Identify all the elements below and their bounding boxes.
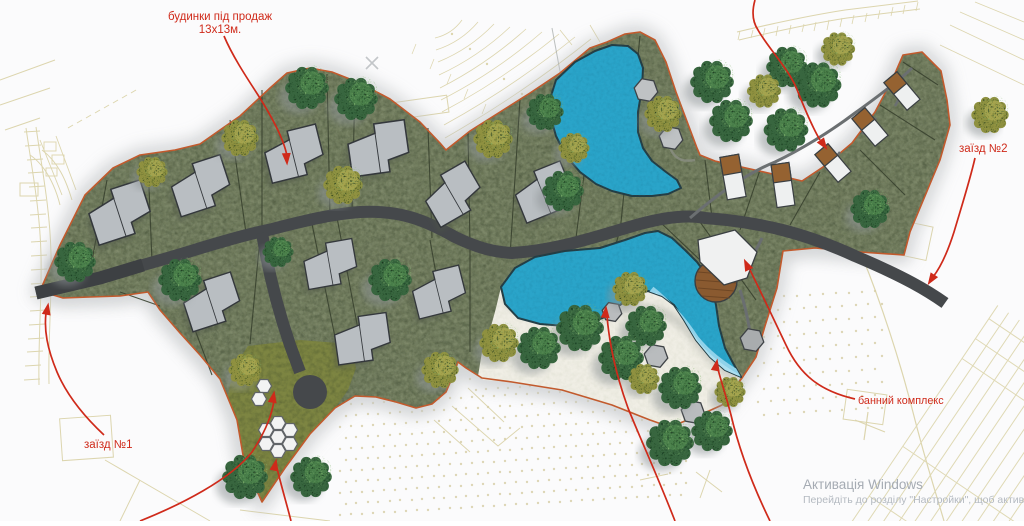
svg-text:заїзд №2: заїзд №2 <box>959 143 1008 155</box>
svg-text:заїзд №1: заїзд №1 <box>84 439 133 451</box>
svg-text:Перейдіть до розділу "Настройк: Перейдіть до розділу "Настройки", щоб ак… <box>803 494 1024 506</box>
svg-text:будинки під продаж: будинки під продаж <box>168 11 272 23</box>
svg-text:13х13м.: 13х13м. <box>199 24 241 36</box>
svg-text:Активація Windows: Активація Windows <box>803 477 923 492</box>
svg-text:банний комплекс: банний комплекс <box>858 395 944 407</box>
